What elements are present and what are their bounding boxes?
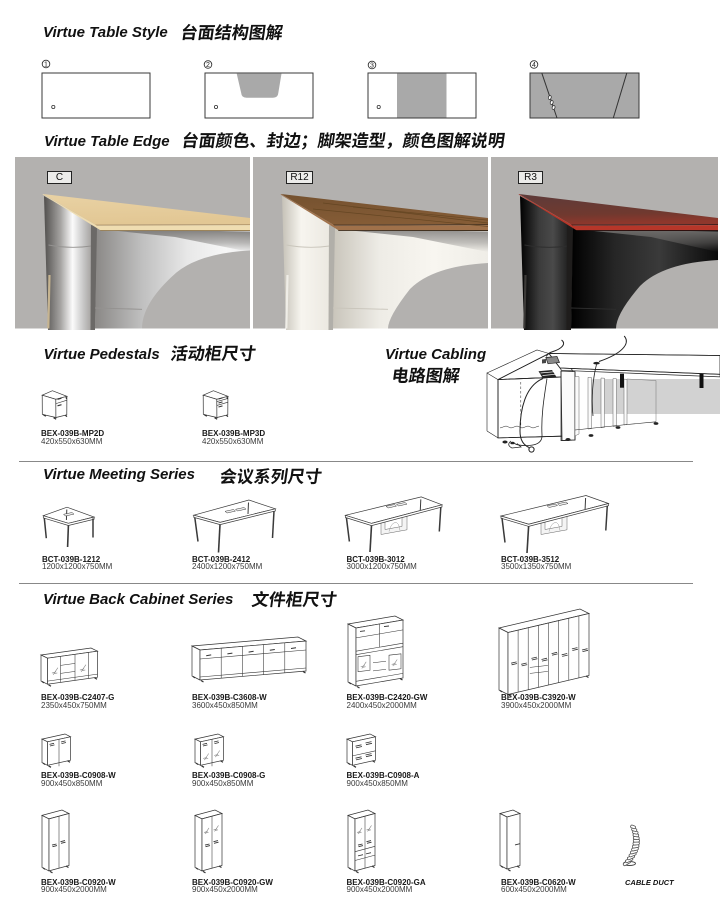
svg-text:2: 2	[206, 62, 210, 69]
svg-text:4: 4	[532, 62, 536, 69]
svg-text:1: 1	[44, 62, 48, 69]
svg-text:3: 3	[370, 63, 374, 70]
